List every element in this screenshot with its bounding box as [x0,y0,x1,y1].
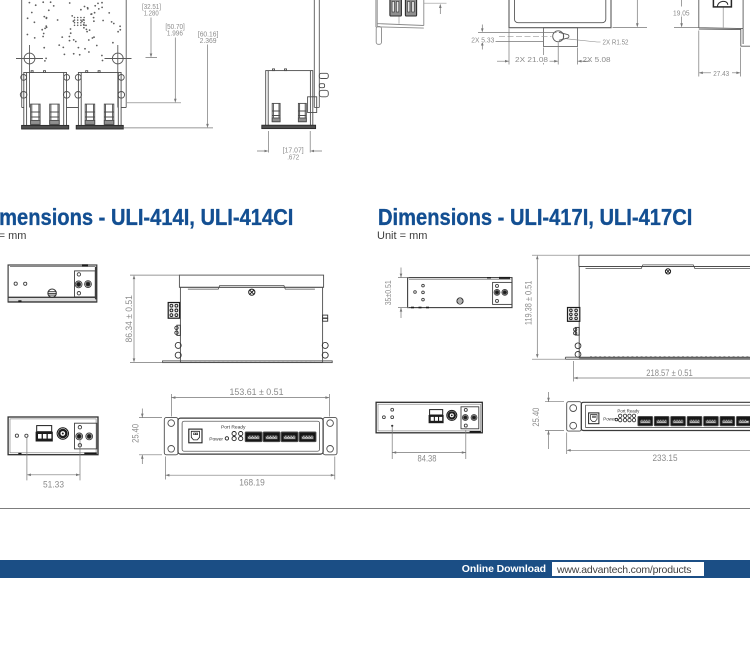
svg-text:Power: Power [603,417,616,422]
svg-text:25.40: 25.40 [131,424,142,443]
svg-text:2X 5.33: 2X 5.33 [471,38,494,45]
svg-text:35±0.51: 35±0.51 [383,280,393,305]
svg-text:19.05: 19.05 [673,10,690,17]
svg-text:27.43: 27.43 [713,71,729,78]
svg-text:2X R1.52: 2X R1.52 [603,40,629,47]
svg-text:86.34 ± 0.51: 86.34 ± 0.51 [124,295,135,343]
svg-text:153.61 ± 0.51: 153.61 ± 0.51 [230,387,284,398]
svg-text:.672: .672 [287,154,299,161]
svg-text:2.369: 2.369 [200,38,217,45]
svg-text:119.38 ± 0.51: 119.38 ± 0.51 [524,281,535,326]
svg-text:Port Ready: Port Ready [617,409,640,414]
svg-text:1.280: 1.280 [144,11,159,18]
svg-text:Power: Power [209,437,223,443]
svg-text:84.38: 84.38 [418,454,437,465]
svg-text:25.40: 25.40 [531,408,542,427]
svg-text:2X 5.08: 2X 5.08 [583,57,611,64]
svg-text:Port Ready: Port Ready [221,425,246,431]
svg-text:1.996: 1.996 [167,31,183,38]
svg-text:218.57 ± 0.51: 218.57 ± 0.51 [646,368,693,379]
svg-text:168.19: 168.19 [239,477,265,488]
svg-text:233.15: 233.15 [653,453,678,464]
svg-text:[17.07]: [17.07] [283,147,304,154]
svg-text:2X 21.08: 2X 21.08 [515,57,548,64]
svg-text:51.33: 51.33 [43,480,64,491]
